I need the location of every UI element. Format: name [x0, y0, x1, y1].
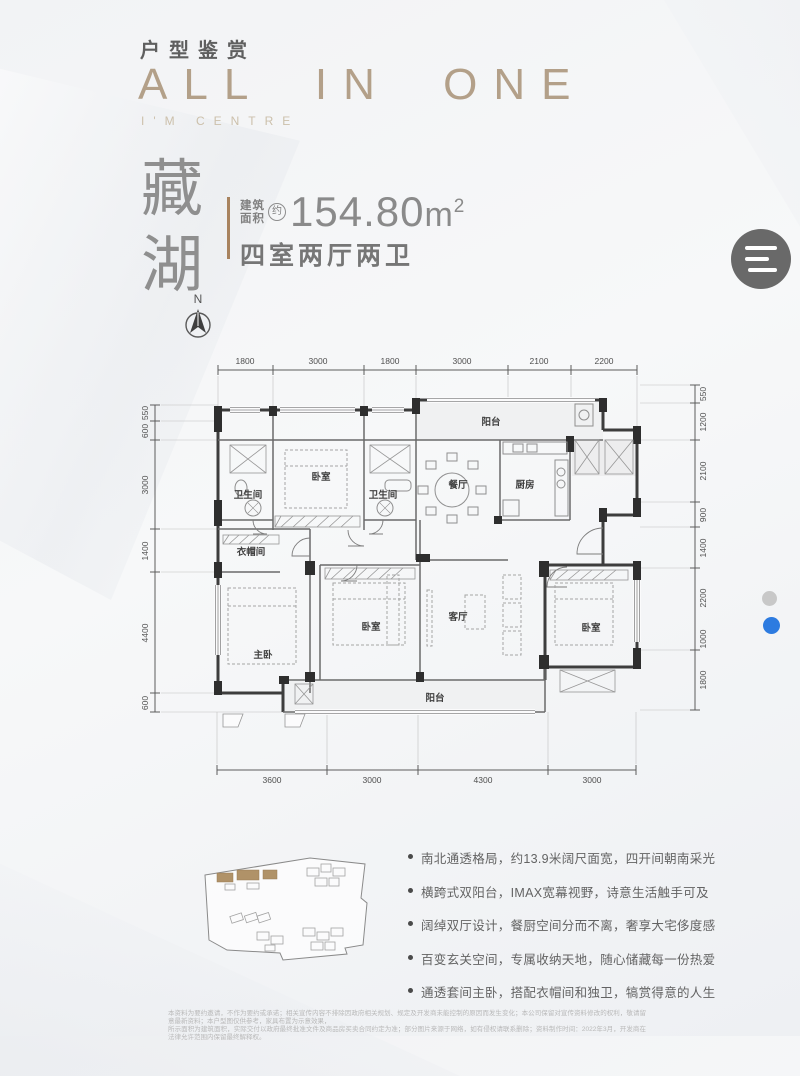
- dim-right-0: 550: [698, 387, 708, 401]
- disclaimer-line: 本资料为要约邀请，不作为要约或承诺；相关宣传内容不排除因政府相关规划、规定及开发…: [168, 1010, 646, 1026]
- dim-top-5: 2200: [595, 356, 614, 366]
- bullet-icon: [408, 854, 413, 859]
- bullet-icon: [408, 988, 413, 993]
- dim-top-1: 3000: [309, 356, 328, 366]
- dim-right-5: 2200: [698, 588, 708, 607]
- room-label-balcony-bottom: 阳台: [425, 692, 445, 704]
- feature-item: 通透套间主卧，搭配衣帽间和独卫，犒赏得意的人生: [408, 982, 715, 1001]
- area-label-line1: 建筑: [240, 200, 265, 213]
- floor-plan: 1800 3000 1800 3000 2100 2200 3600 3000 …: [135, 340, 710, 800]
- disclaimer-line: 所示面积为建筑面积，实际交付以政府最终批准文件及商品房买卖合同约定为准；部分图片…: [168, 1026, 646, 1042]
- area-exponent: 2: [454, 196, 466, 217]
- dim-right-2: 2100: [698, 461, 708, 480]
- dim-left-4: 4400: [140, 623, 150, 642]
- page-title: ALL IN ONE: [138, 60, 586, 110]
- room-label-bathroom1: 卫生间: [234, 489, 263, 501]
- room-label-bedroom-center: 卧室: [361, 621, 381, 633]
- feature-item: 横跨式双阳台，IMAX宽幕视野，诗意生活触手可及: [408, 882, 715, 901]
- disclaimer: 本资料为要约邀请，不作为要约或承诺；相关宣传内容不排除因政府相关规划、规定及开发…: [168, 1010, 646, 1042]
- dim-left-5: 600: [140, 696, 150, 710]
- dim-left-3: 1400: [140, 541, 150, 560]
- dim-top-2: 1800: [381, 356, 400, 366]
- menu-button[interactable]: [731, 229, 791, 289]
- hamburger-icon: [745, 246, 777, 250]
- pagination-dot-active[interactable]: [763, 617, 780, 634]
- approx-badge: 约: [268, 203, 286, 221]
- balcony-bottom-area: [284, 681, 545, 711]
- compass-north-label: N: [178, 292, 218, 306]
- bullet-icon: [408, 888, 413, 893]
- stair-shaft-area: [572, 439, 636, 476]
- dim-right-3: 900: [698, 508, 708, 522]
- feature-list: 南北通透格局，约13.9米阔尺面宽，四开间朝南采光 横跨式双阳台，IMAX宽幕视…: [408, 848, 715, 1016]
- dim-bottom-0: 3600: [263, 775, 282, 785]
- room-label-bathroom2: 卫生间: [369, 489, 398, 501]
- dim-top-4: 2100: [530, 356, 549, 366]
- bullet-icon: [408, 921, 413, 926]
- dim-top-3: 3000: [453, 356, 472, 366]
- area-label: 建筑 面积: [240, 200, 265, 225]
- room-label-master: 主卧: [253, 649, 273, 661]
- room-label-living: 客厅: [447, 611, 468, 623]
- dim-bottom-2: 4300: [474, 775, 493, 785]
- dim-bottom-1: 3000: [363, 775, 382, 785]
- site-plan-thumbnail: [195, 850, 385, 975]
- area-number: 154.80: [290, 188, 424, 235]
- dim-left-2: 3000: [140, 475, 150, 494]
- dim-bottom-3: 3000: [583, 775, 602, 785]
- room-label-dining: 餐厅: [447, 479, 468, 491]
- feature-text: 百变玄关空间，专属收纳天地，随心储藏每一份热爱: [421, 949, 715, 968]
- feature-text: 阔绰双厅设计，餐厨空间分而不离，奢享大宅侈度感: [421, 915, 715, 934]
- pagination-dot-inactive[interactable]: [762, 591, 777, 606]
- page-category: 户型鉴赏: [140, 34, 256, 63]
- layout-type: 四室两厅两卫: [240, 236, 414, 272]
- dim-left-0: 550: [140, 406, 150, 420]
- hamburger-icon: [745, 257, 769, 261]
- north-compass-icon: N: [178, 292, 218, 345]
- dim-right-6: 1000: [698, 629, 708, 648]
- room-label-bedroom-top: 卧室: [311, 471, 331, 483]
- feature-text: 南北通透格局，约13.9米阔尺面宽，四开间朝南采光: [421, 848, 715, 867]
- compass-arrow-icon: [178, 306, 218, 340]
- dim-right-7: 1800: [698, 670, 708, 689]
- dim-right-4: 1400: [698, 538, 708, 557]
- area-label-line2: 面积: [240, 213, 265, 226]
- bullet-icon: [408, 955, 413, 960]
- feature-text: 通透套间主卧，搭配衣帽间和独卫，犒赏得意的人生: [421, 982, 715, 1001]
- area-unit: m: [424, 196, 453, 234]
- dim-left-1: 600: [140, 424, 150, 438]
- room-label-bedroom-right: 卧室: [581, 622, 601, 634]
- feature-text: 横跨式双阳台，IMAX宽幕视野，诗意生活触手可及: [421, 882, 709, 901]
- hamburger-icon: [748, 268, 777, 272]
- unit-name-char: 藏: [132, 152, 212, 228]
- feature-item: 南北通透格局，约13.9米阔尺面宽，四开间朝南采光: [408, 848, 715, 867]
- accent-rule: [227, 197, 230, 259]
- feature-item: 百变玄关空间，专属收纳天地，随心储藏每一份热爱: [408, 949, 715, 968]
- area-value: 154.80m2: [290, 188, 465, 236]
- page-subtitle: I'M CENTRE: [141, 114, 299, 128]
- room-label-kitchen: 厨房: [515, 479, 534, 491]
- room-label-cloakroom: 衣帽间: [237, 546, 266, 558]
- door-arcs: [253, 520, 603, 587]
- background-facet: [520, 0, 800, 360]
- dim-right-1: 1200: [698, 412, 708, 431]
- dim-top-0: 1800: [236, 356, 255, 366]
- room-label-balcony-top: 阳台: [481, 416, 501, 428]
- feature-item: 阔绰双厅设计，餐厨空间分而不离，奢享大宅侈度感: [408, 915, 715, 934]
- unit-name: 藏 湖: [132, 152, 212, 304]
